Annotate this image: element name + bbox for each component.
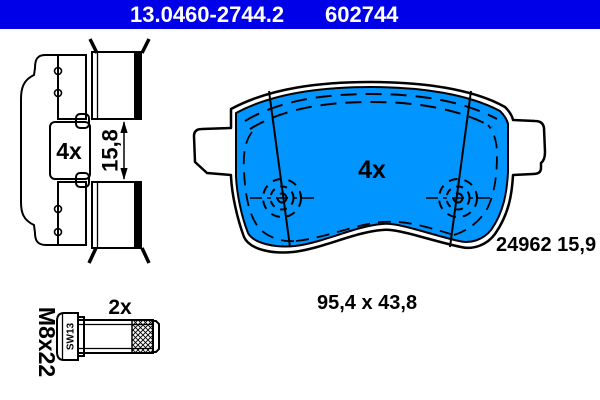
part-number: 13.0460-2744.2: [130, 2, 284, 28]
overall-dimensions-label: 95,4 x 43,8: [317, 292, 417, 315]
wva-number-label: 24962 15,9: [496, 234, 596, 257]
product-diagram: 13.0460-2744.2 602744 4x 15,8: [0, 0, 600, 400]
front-view-quantity: 4x: [358, 156, 386, 184]
spring-clip-profile: [21, 55, 58, 245]
friction-block-bottom: [92, 182, 141, 248]
bolt-drawing: M8x22 2x SW13: [28, 290, 168, 390]
backplate-band-bottom: [134, 183, 140, 247]
bolt-tip: [153, 321, 159, 352]
friction-block-top: [92, 52, 141, 119]
backplate-band-top: [134, 53, 140, 118]
side-view-drawing: 4x 15,8: [8, 36, 158, 281]
side-view-quantity: 4x: [56, 138, 82, 164]
thickness-dimension: 15,8: [98, 129, 123, 172]
wrench-size-label: SW13: [66, 322, 77, 350]
backplate-top: [58, 55, 86, 119]
reference-number: 602744: [325, 2, 398, 28]
backplate-bottom: [58, 182, 86, 245]
bolt-thread: [132, 321, 153, 352]
bolt-quantity: 2x: [108, 296, 132, 319]
title-bar: 13.0460-2744.2 602744: [0, 0, 600, 29]
